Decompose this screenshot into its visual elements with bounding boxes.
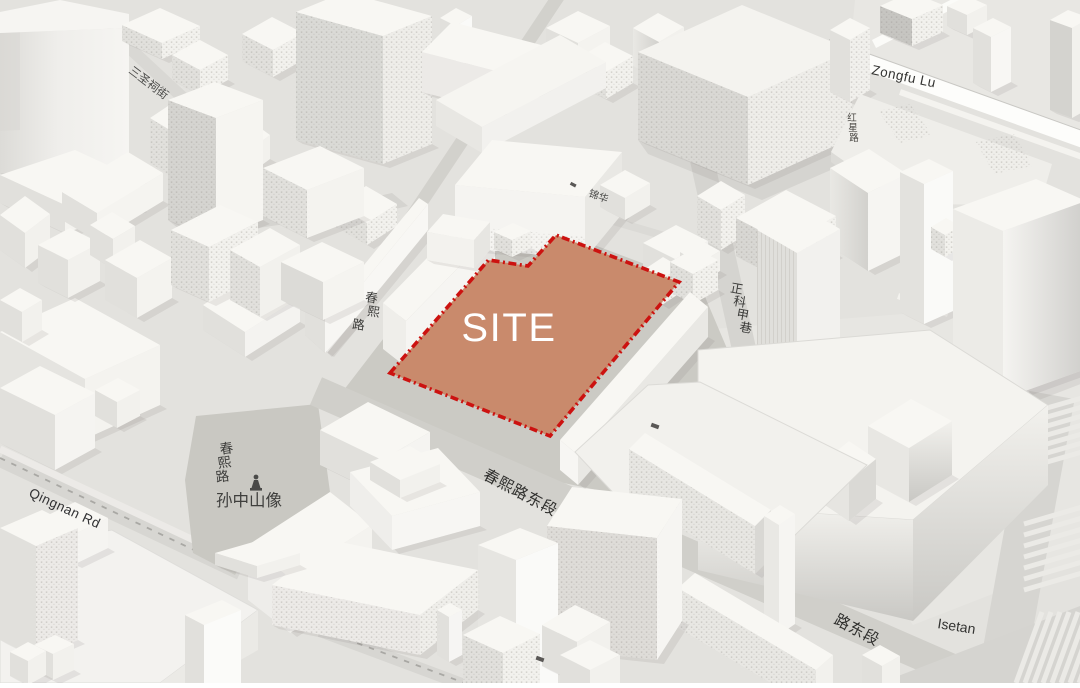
- svg-text:路: 路: [215, 468, 231, 485]
- svg-text:路: 路: [849, 132, 859, 144]
- svg-text:SITE: SITE: [461, 306, 556, 350]
- svg-text:熙: 熙: [366, 304, 381, 320]
- svg-text:春: 春: [364, 290, 379, 306]
- svg-text:孙中山像: 孙中山像: [216, 491, 282, 510]
- svg-text:路: 路: [351, 316, 366, 333]
